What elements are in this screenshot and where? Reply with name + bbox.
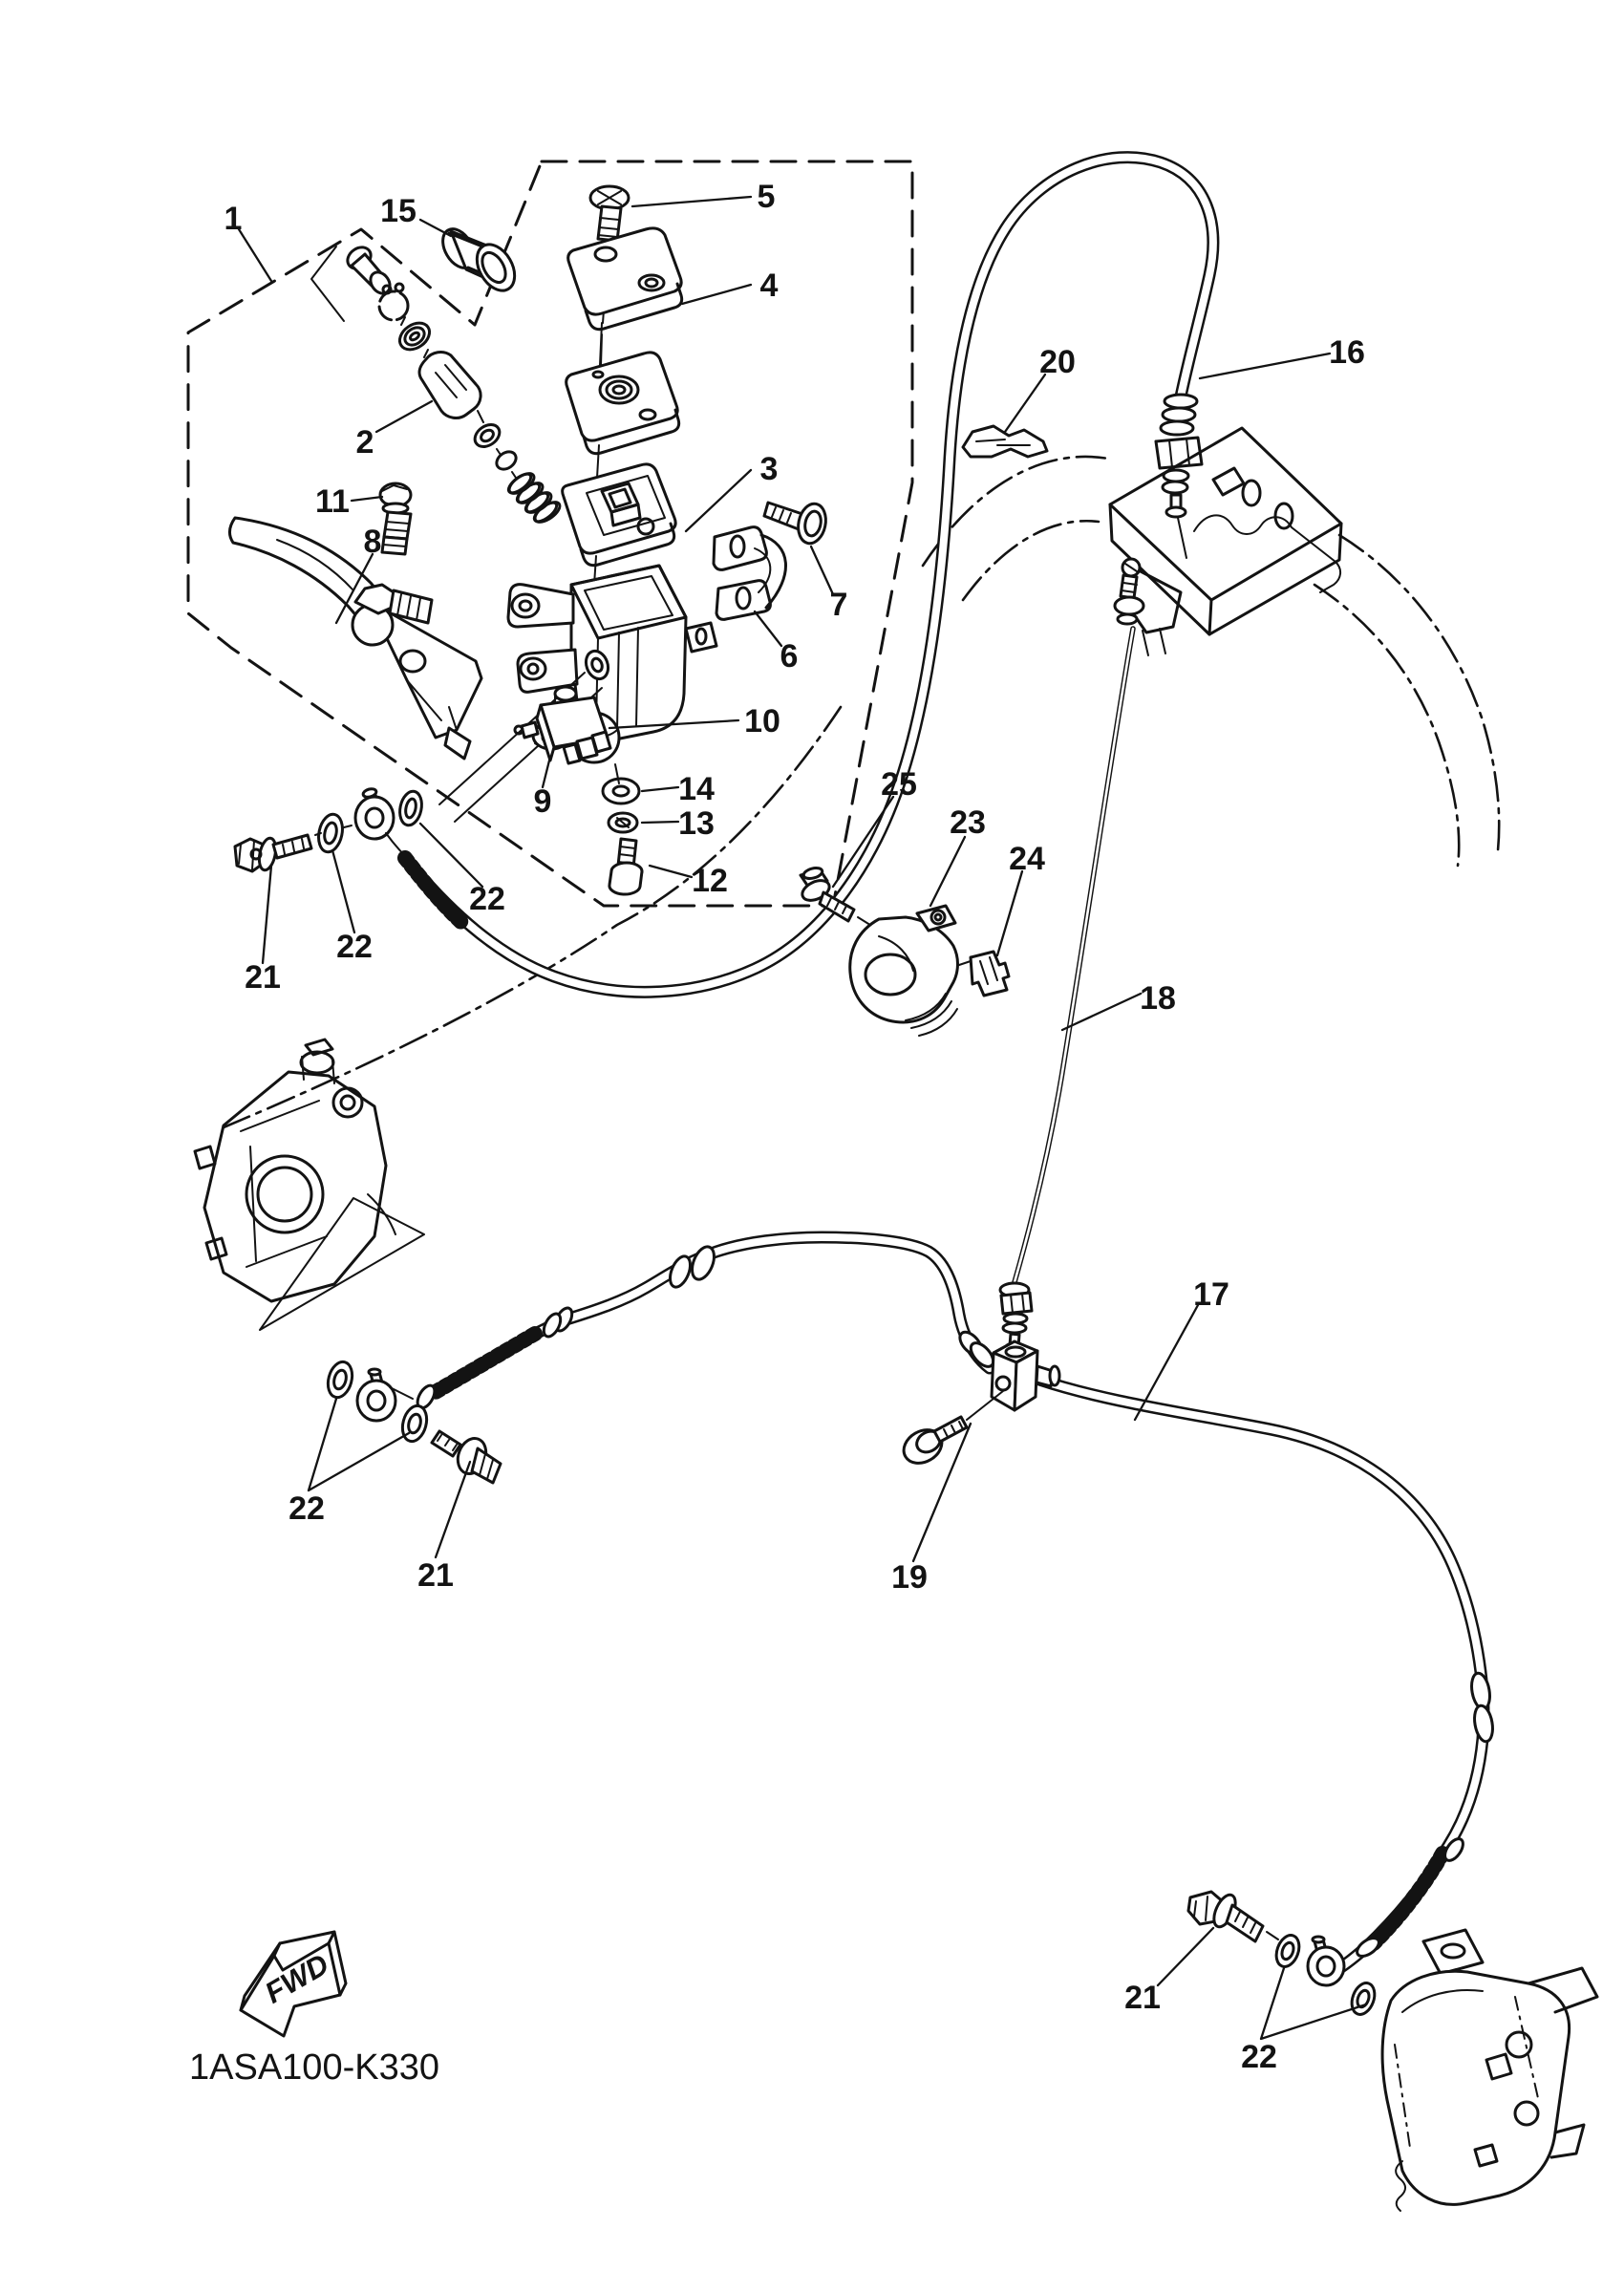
callout-label: 23 [950, 804, 986, 841]
hose-16-fitting [1156, 395, 1202, 558]
left-caliper [195, 1039, 395, 1301]
parts-diagram-page: 1 15 5 4 3 2 11 8 7 6 10 14 13 12 9 22 2… [0, 0, 1624, 2293]
cable-clamp-23 [850, 906, 958, 1036]
cable-18 [1000, 559, 1143, 1351]
callout-label: 13 [678, 805, 715, 842]
callout-label: 25 [881, 766, 917, 803]
callout-label: 21 [245, 959, 281, 996]
callout-label: 12 [692, 863, 728, 899]
union-bolt-21-top [235, 835, 311, 871]
upper-banjo-group [235, 787, 425, 871]
fwd-arrow: FWD [241, 1932, 346, 2036]
washer-22-bl-2 [398, 1404, 430, 1445]
callout-label: 2 [356, 424, 374, 461]
callout-label: 17 [1193, 1276, 1229, 1313]
pivot-bolt-11 [380, 483, 411, 554]
callout-label: 22 [1241, 2039, 1277, 2075]
callout-label: 20 [1039, 344, 1076, 380]
callout-label: 1 [224, 201, 243, 237]
washer-22-top-2 [396, 789, 424, 827]
handlebar-clamp-6 [714, 527, 785, 620]
hose-left-branch [324, 1237, 996, 1483]
callout-label: 9 [534, 783, 552, 820]
callout-label: 8 [364, 524, 382, 560]
callout-label: 22 [336, 929, 373, 965]
switch-washer-13 [609, 813, 637, 832]
section-pointer-triangle [260, 1198, 424, 1330]
callout-label: 3 [760, 451, 779, 487]
callout-label: 24 [1009, 841, 1045, 877]
reservoir-cap-4 [568, 228, 682, 330]
callout-label: 21 [1124, 1980, 1161, 2016]
callout-label: 18 [1140, 980, 1176, 1017]
brake-hose-16 [405, 158, 1213, 993]
callout-label: 16 [1329, 334, 1365, 371]
callout-label: 4 [760, 268, 779, 304]
leader-lines [239, 197, 1366, 2039]
callout-label: 22 [288, 1490, 325, 1527]
callout-label: 14 [678, 771, 715, 807]
union-tee [992, 1341, 1059, 1410]
callout-label: 11 [315, 483, 350, 520]
clamp-bolt-7 [764, 502, 829, 546]
cable-18-upper-fitting [1115, 559, 1143, 624]
callout-label: 7 [830, 587, 848, 623]
union-bolt-19 [898, 1391, 1003, 1469]
callout-label: 22 [469, 881, 505, 917]
callout-label: 5 [758, 179, 776, 215]
switch-screw-12 [609, 839, 642, 894]
union-bolt-21-br [1188, 1892, 1278, 1941]
callout-label: 6 [780, 638, 799, 675]
washer-22-bl-1 [324, 1360, 355, 1401]
piston-spring [506, 470, 564, 526]
washer-22-br-2 [1348, 1980, 1378, 2017]
handlebar-bracket [1110, 428, 1341, 655]
reservoir-plate [566, 323, 679, 454]
left-banjo-union [357, 1369, 413, 1421]
right-caliper [1382, 1930, 1597, 2211]
callout-label: 15 [380, 193, 417, 229]
exploded-parts-diagram: 1 15 5 4 3 2 11 8 7 6 10 14 13 12 9 22 2… [0, 0, 1624, 2293]
cable-connector-24 [959, 952, 1009, 996]
callout-label: 19 [891, 1559, 928, 1596]
reservoir-diaphragm-3 [563, 445, 675, 585]
right-banjo-union [1308, 1937, 1344, 1985]
brake-lever-8 [229, 518, 481, 759]
part-code: 1ASA100-K330 [189, 2047, 439, 2088]
callout-label: 10 [744, 703, 780, 739]
brake-hose-17 [1039, 1380, 1495, 2018]
callout-label: 21 [417, 1557, 454, 1594]
switch-washer-14 [603, 764, 639, 804]
